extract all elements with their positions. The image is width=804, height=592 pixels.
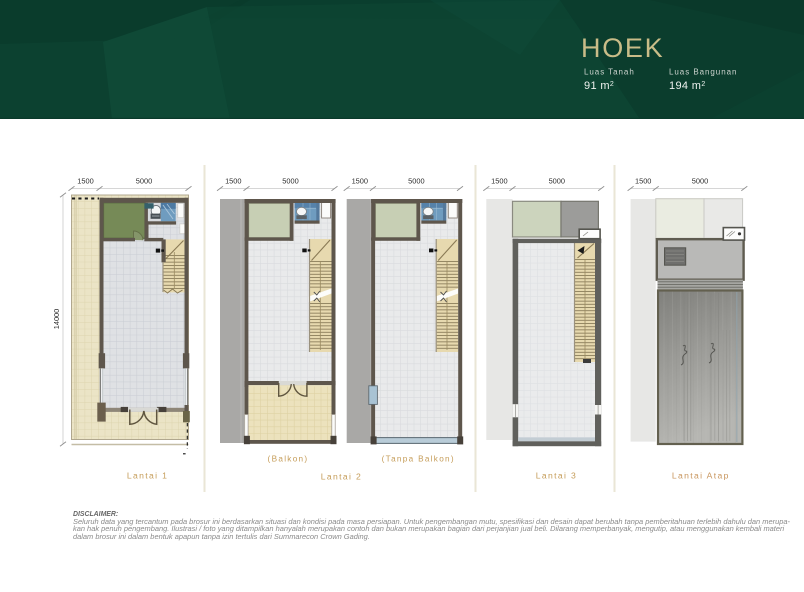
svg-text:5000: 5000 [549,176,565,185]
svg-text:Lantai Atap: Lantai Atap [672,471,730,481]
svg-text:HOEK: HOEK [581,33,664,63]
svg-text:Lantai 3: Lantai 3 [536,471,577,481]
svg-text:5000: 5000 [692,176,708,185]
svg-text:5000: 5000 [282,176,298,185]
svg-text:(Balkon): (Balkon) [268,455,309,464]
svg-text:14000: 14000 [52,309,61,330]
svg-text:1500: 1500 [635,176,651,185]
svg-text:Luas Bangunan: Luas Bangunan [669,68,737,77]
svg-text:1500: 1500 [352,176,368,185]
svg-text:Luas Tanah: Luas Tanah [584,68,635,77]
svg-text:Lantai 1: Lantai 1 [127,471,168,481]
svg-text:5000: 5000 [136,176,152,185]
svg-text:194 m2: 194 m2 [669,80,706,92]
svg-text:Lantai 2: Lantai 2 [321,472,362,482]
svg-text:1500: 1500 [491,176,507,185]
svg-text:5000: 5000 [408,176,424,185]
svg-text:91 m2: 91 m2 [584,80,614,92]
svg-text:1500: 1500 [225,176,241,185]
svg-text:(Tanpa Balkon): (Tanpa Balkon) [382,455,455,464]
svg-text:1500: 1500 [77,176,93,185]
